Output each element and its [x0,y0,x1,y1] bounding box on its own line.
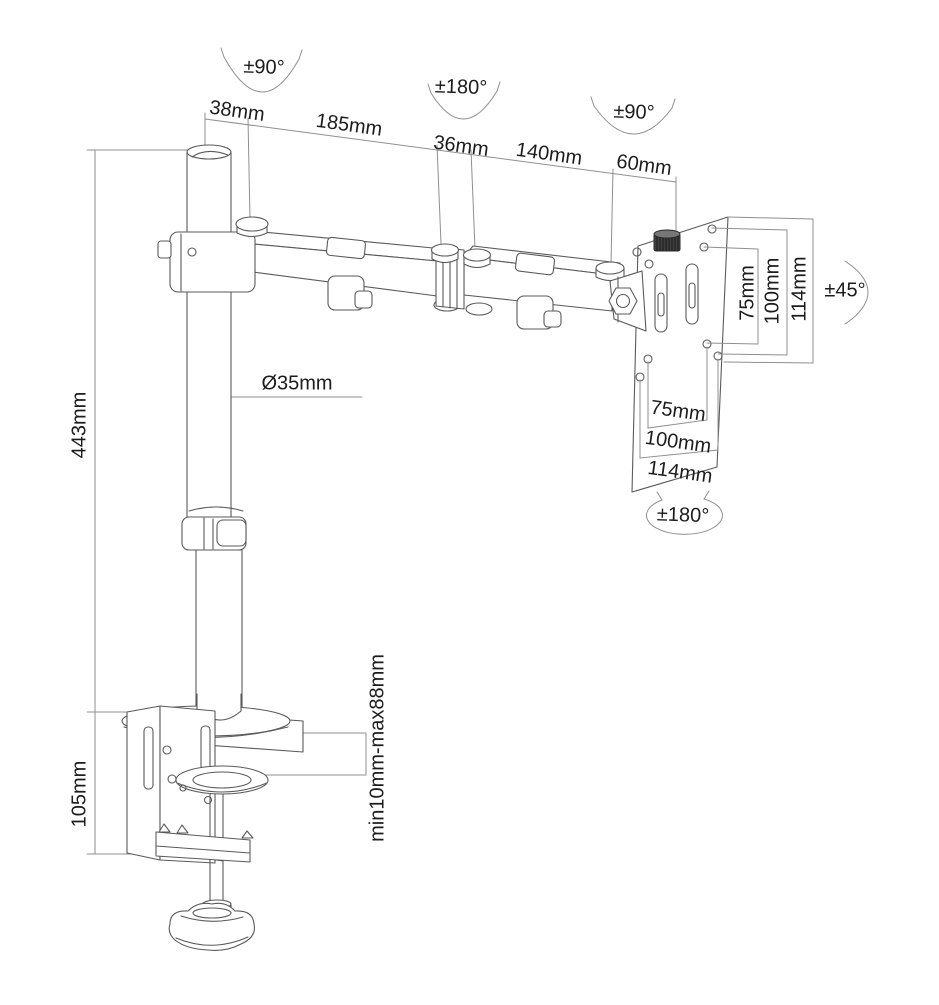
pole [187,145,242,720]
label-vesa-rotation: ±180° [656,503,709,527]
label-head-swivel: ±90° [613,101,655,124]
cable-clip-top-2 [515,253,555,275]
label-pole-swivel: ±90° [243,56,285,79]
head-joint-bolt [596,262,624,274]
label-pole-diameter: Ø35mm [261,372,332,394]
clamp-knob [169,903,254,950]
thumbscrew [654,230,680,251]
label-head-width: 60mm [615,151,673,181]
label-vesa-vertical-75: 75mm [736,265,758,321]
mount-dimension-drawing: ±90° 38mm 185mm ±180° 36mm 140mm ±90° 60… [0,0,939,1000]
pole-collar [182,507,246,550]
label-pole-top-width: 38mm [208,97,266,127]
desk-clamp [122,694,303,950]
pole-arm-clamp [158,217,268,292]
diagram-canvas: ±90° 38mm 185mm ±180° 36mm 140mm ±90° 60… [0,0,939,1000]
mid-joint-bolt-1 [432,244,459,256]
label-pole-height: 443mm [68,392,90,459]
arm-assembly [237,231,624,329]
label-clamp-range: min10mm-max88mm [366,654,388,842]
label-mid-joint-swivel: ±180° [434,75,487,99]
label-vesa-vertical-100: 100mm [761,258,783,325]
clamp-pad [176,766,268,794]
label-tilt-range: ±45° [824,279,865,301]
mid-joint-bolt-2 [464,249,491,261]
label-arm1-length: 185mm [315,110,384,141]
label-arm2-length: 140mm [515,139,584,170]
label-mid-joint-width: 36mm [432,132,490,162]
cable-clip-top-1 [326,237,366,259]
label-clamp-height: 105mm [68,761,90,828]
arm-base-bolt [236,217,268,231]
label-vesa-vertical-114: 114mm [788,256,810,321]
